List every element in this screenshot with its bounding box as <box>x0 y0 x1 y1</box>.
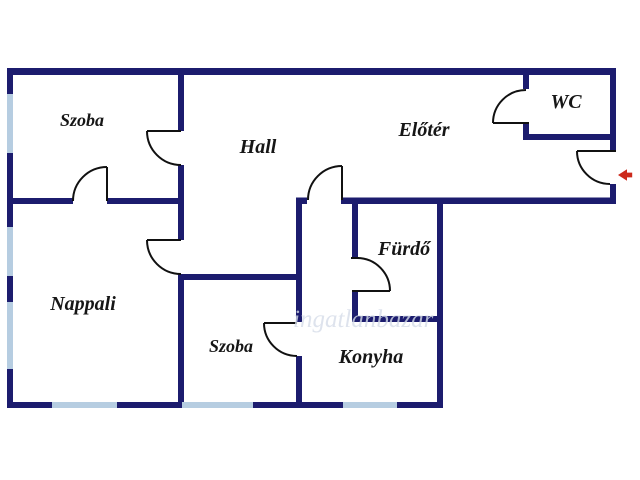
svg-text:Szoba: Szoba <box>209 336 253 356</box>
svg-text:Konyha: Konyha <box>338 346 403 368</box>
svg-text:Fürdő: Fürdő <box>377 238 432 260</box>
svg-text:Nappali: Nappali <box>49 293 116 315</box>
svg-text:Hall: Hall <box>239 136 277 158</box>
svg-text:Szoba: Szoba <box>60 110 104 130</box>
svg-text:WC: WC <box>550 91 582 113</box>
svg-text:Előtér: Előtér <box>397 119 449 141</box>
svg-text:ingatlanbazar: ingatlanbazar <box>293 306 434 333</box>
